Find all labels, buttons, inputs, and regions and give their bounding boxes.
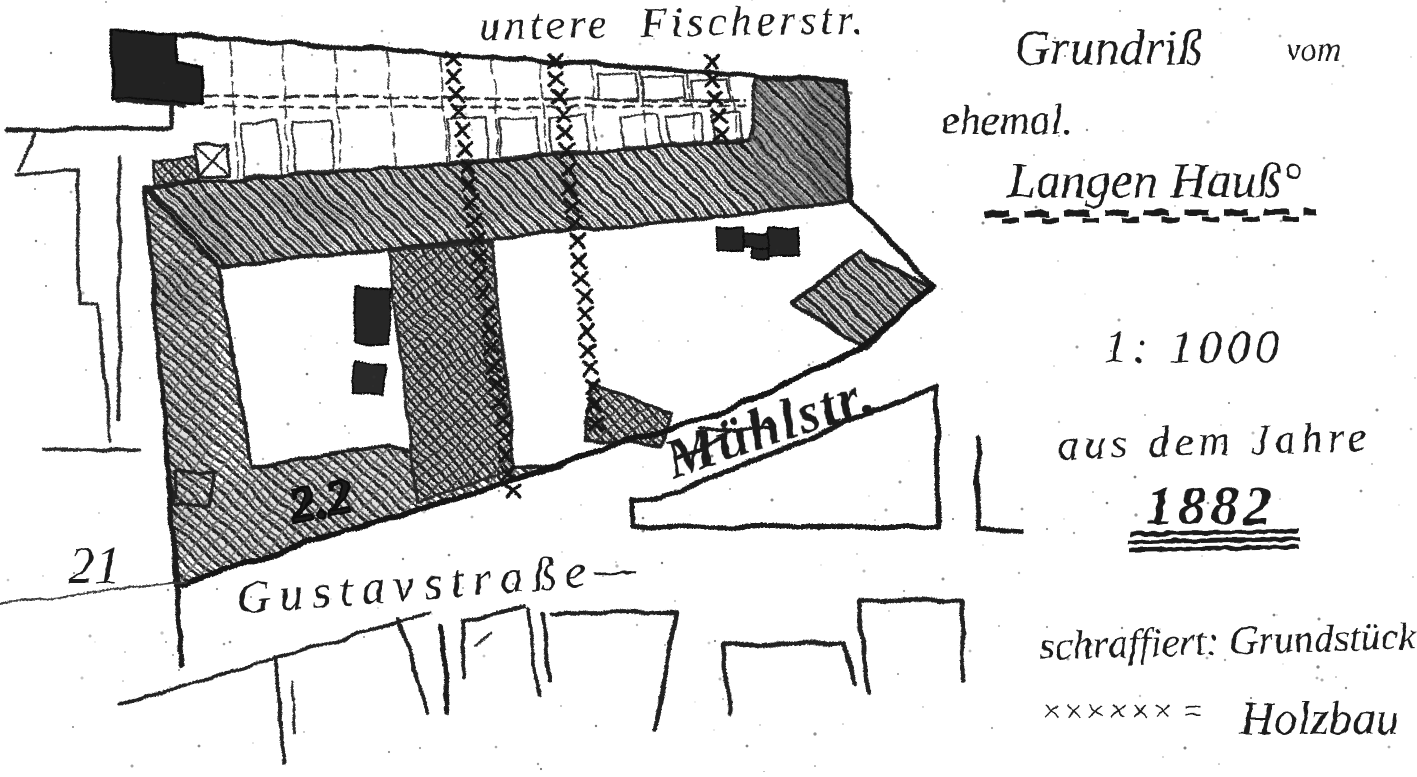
svg-text:aus dem Jahre: aus dem Jahre — [1057, 414, 1372, 469]
svg-text:1882: 1882 — [1146, 475, 1276, 536]
svg-text:×××××× =: ×××××× = — [1040, 694, 1204, 730]
svg-text:ehemal.: ehemal. — [941, 98, 1073, 144]
svg-text:Grundriß: Grundriß — [1014, 19, 1203, 75]
svg-text:2.2: 2.2 — [283, 467, 356, 534]
svg-text:1: 1000: 1: 1000 — [1104, 321, 1284, 373]
svg-text:21: 21 — [68, 537, 121, 595]
svg-text:Holzbau: Holzbau — [1239, 693, 1399, 745]
svg-text:Langen Hauß°: Langen Hauß° — [1007, 152, 1302, 208]
svg-text:vom: vom — [1286, 32, 1341, 68]
svg-text:untere Fischerstr.: untere Fischerstr. — [478, 0, 867, 50]
